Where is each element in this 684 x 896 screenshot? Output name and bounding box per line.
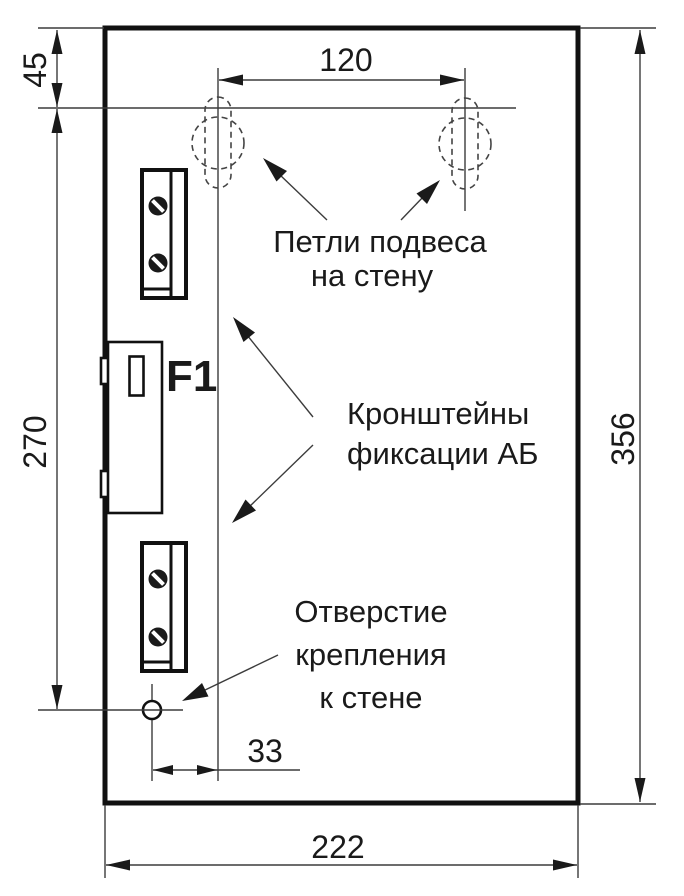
arrowhead-down	[635, 778, 646, 802]
screw	[149, 254, 168, 273]
brackets-label-line2: фиксации АБ	[347, 436, 539, 471]
hole-label-line1: Отверстие	[294, 594, 447, 629]
drawing-canvas: F1 45 120 270 356	[0, 0, 684, 896]
hole-label-line3: к стене	[319, 680, 422, 715]
dim-356-value: 356	[605, 412, 641, 465]
bracket-top	[142, 170, 186, 298]
screw	[149, 197, 168, 216]
arrowhead-down	[52, 83, 63, 107]
dim-120-value: 120	[319, 42, 372, 78]
fuse-window	[130, 357, 144, 396]
arrowhead-up	[52, 109, 63, 133]
fuse-label: F1	[166, 352, 217, 401]
arrowhead-down	[52, 685, 63, 709]
arrowhead-right	[553, 860, 577, 871]
screw	[149, 628, 168, 647]
loops-label-line2: на стену	[311, 258, 434, 293]
hole-label-line2: крепления	[295, 637, 446, 672]
bracket-body	[142, 543, 186, 671]
arrowhead-up	[635, 30, 646, 54]
dim-222: 222	[105, 805, 578, 878]
arrowhead-left	[106, 860, 130, 871]
arrowhead-up	[52, 30, 63, 54]
bracket-body	[142, 170, 186, 298]
screw	[149, 570, 168, 589]
technical-drawing: F1 45 120 270 356	[0, 0, 684, 896]
dim-45-value: 45	[17, 52, 53, 88]
loops-label-line1: Петли подвеса	[273, 224, 487, 259]
dim-45: 45	[17, 28, 104, 107]
dim-33-value: 33	[247, 733, 283, 769]
bracket-bottom	[142, 543, 186, 671]
dim-356: 356	[580, 28, 656, 804]
brackets-label-line1: Кронштейны	[347, 396, 529, 431]
dim-222-value: 222	[311, 829, 364, 865]
dim-270-value: 270	[17, 415, 53, 468]
